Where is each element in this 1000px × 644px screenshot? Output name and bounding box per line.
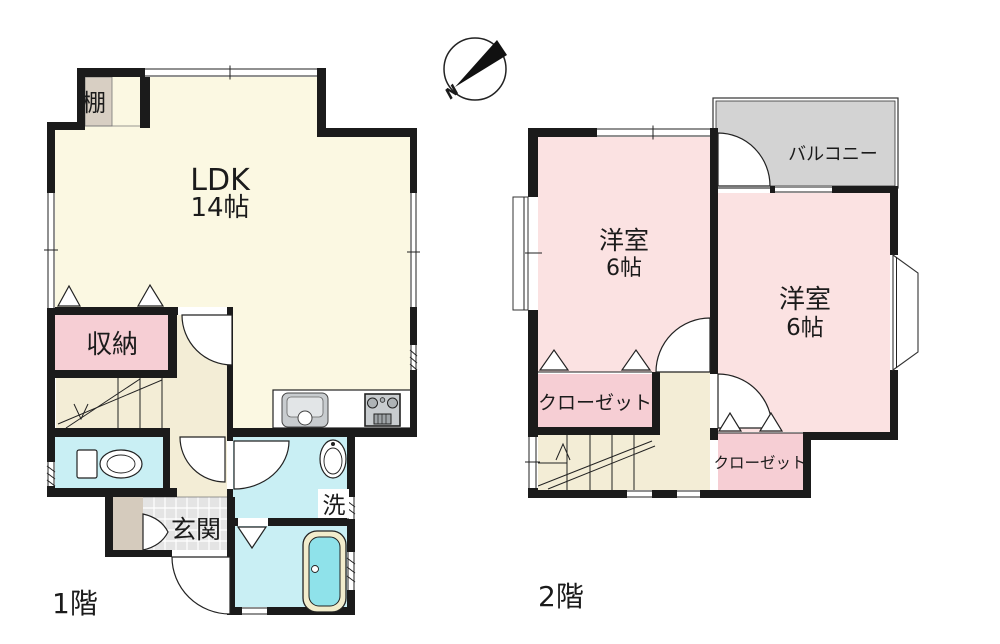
shelf-label: 棚 xyxy=(82,89,106,117)
floor1-label: 1階 xyxy=(52,587,98,620)
entrance-label: 玄関 xyxy=(171,515,221,544)
floor2-label: 2階 xyxy=(538,580,584,613)
room-western2-size: 6帖 xyxy=(786,315,824,341)
louver-window-bath xyxy=(347,552,355,590)
washroom-label: 洗 xyxy=(323,493,346,519)
window-western1-left xyxy=(513,197,542,310)
window-bath-bottom xyxy=(242,607,267,615)
stove-icon xyxy=(365,394,400,426)
room-western1-label: 洋室 xyxy=(599,226,649,255)
toilet-icon xyxy=(77,450,142,478)
louver-window-toilet xyxy=(47,462,55,486)
kitchen-sink-icon xyxy=(282,393,328,427)
room-western2-label: 洋室 xyxy=(779,285,831,315)
kitchen-counter xyxy=(273,390,412,428)
door-arc-front-entrance xyxy=(172,557,230,614)
balcony-label: バルコニー xyxy=(788,144,878,165)
washbasin-icon xyxy=(320,440,346,478)
closet-right-label: クローゼット xyxy=(713,454,806,472)
window-stairs-left xyxy=(525,437,540,488)
louver-window-kitchen xyxy=(410,345,417,370)
bathtub-icon xyxy=(303,531,346,612)
window-balcony-wall xyxy=(775,186,832,193)
floor2-hall-floor xyxy=(655,372,710,490)
floorplan-page: N LDK 14帖 棚 収納 玄関 洗 1階 洋室 6帖 洋室 6帖 バルコニー… xyxy=(0,0,1000,644)
room-ldk-size: 14帖 xyxy=(190,193,249,223)
closet-left-label: クローゼット xyxy=(538,392,652,414)
compass-icon: N xyxy=(441,38,507,103)
bay-window-western2 xyxy=(890,255,918,370)
entrance-porch xyxy=(113,497,143,550)
storage-label: 収納 xyxy=(86,330,138,360)
room-western1-size: 6帖 xyxy=(606,256,642,281)
floorplan-svg: N LDK 14帖 棚 収納 玄関 洗 1階 洋室 6帖 洋室 6帖 バルコニー… xyxy=(0,0,1000,644)
